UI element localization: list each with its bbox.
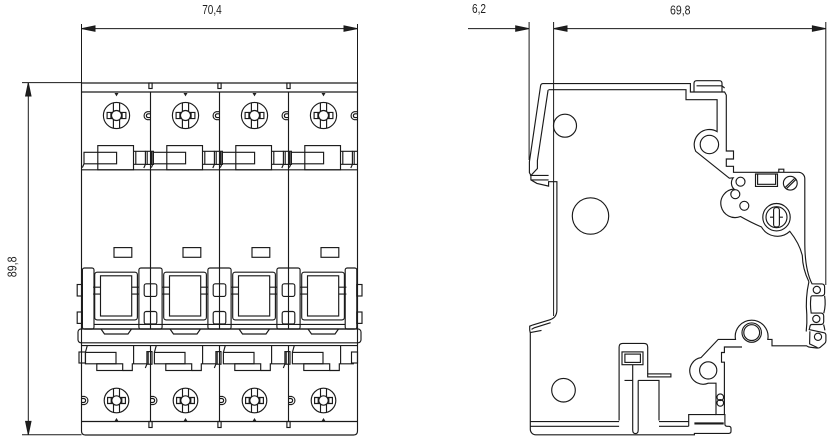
svg-text:70,4: 70,4 xyxy=(202,2,222,17)
svg-text:69,8: 69,8 xyxy=(670,3,691,18)
svg-text:89,8: 89,8 xyxy=(5,257,20,278)
svg-text:6,2: 6,2 xyxy=(472,1,486,16)
